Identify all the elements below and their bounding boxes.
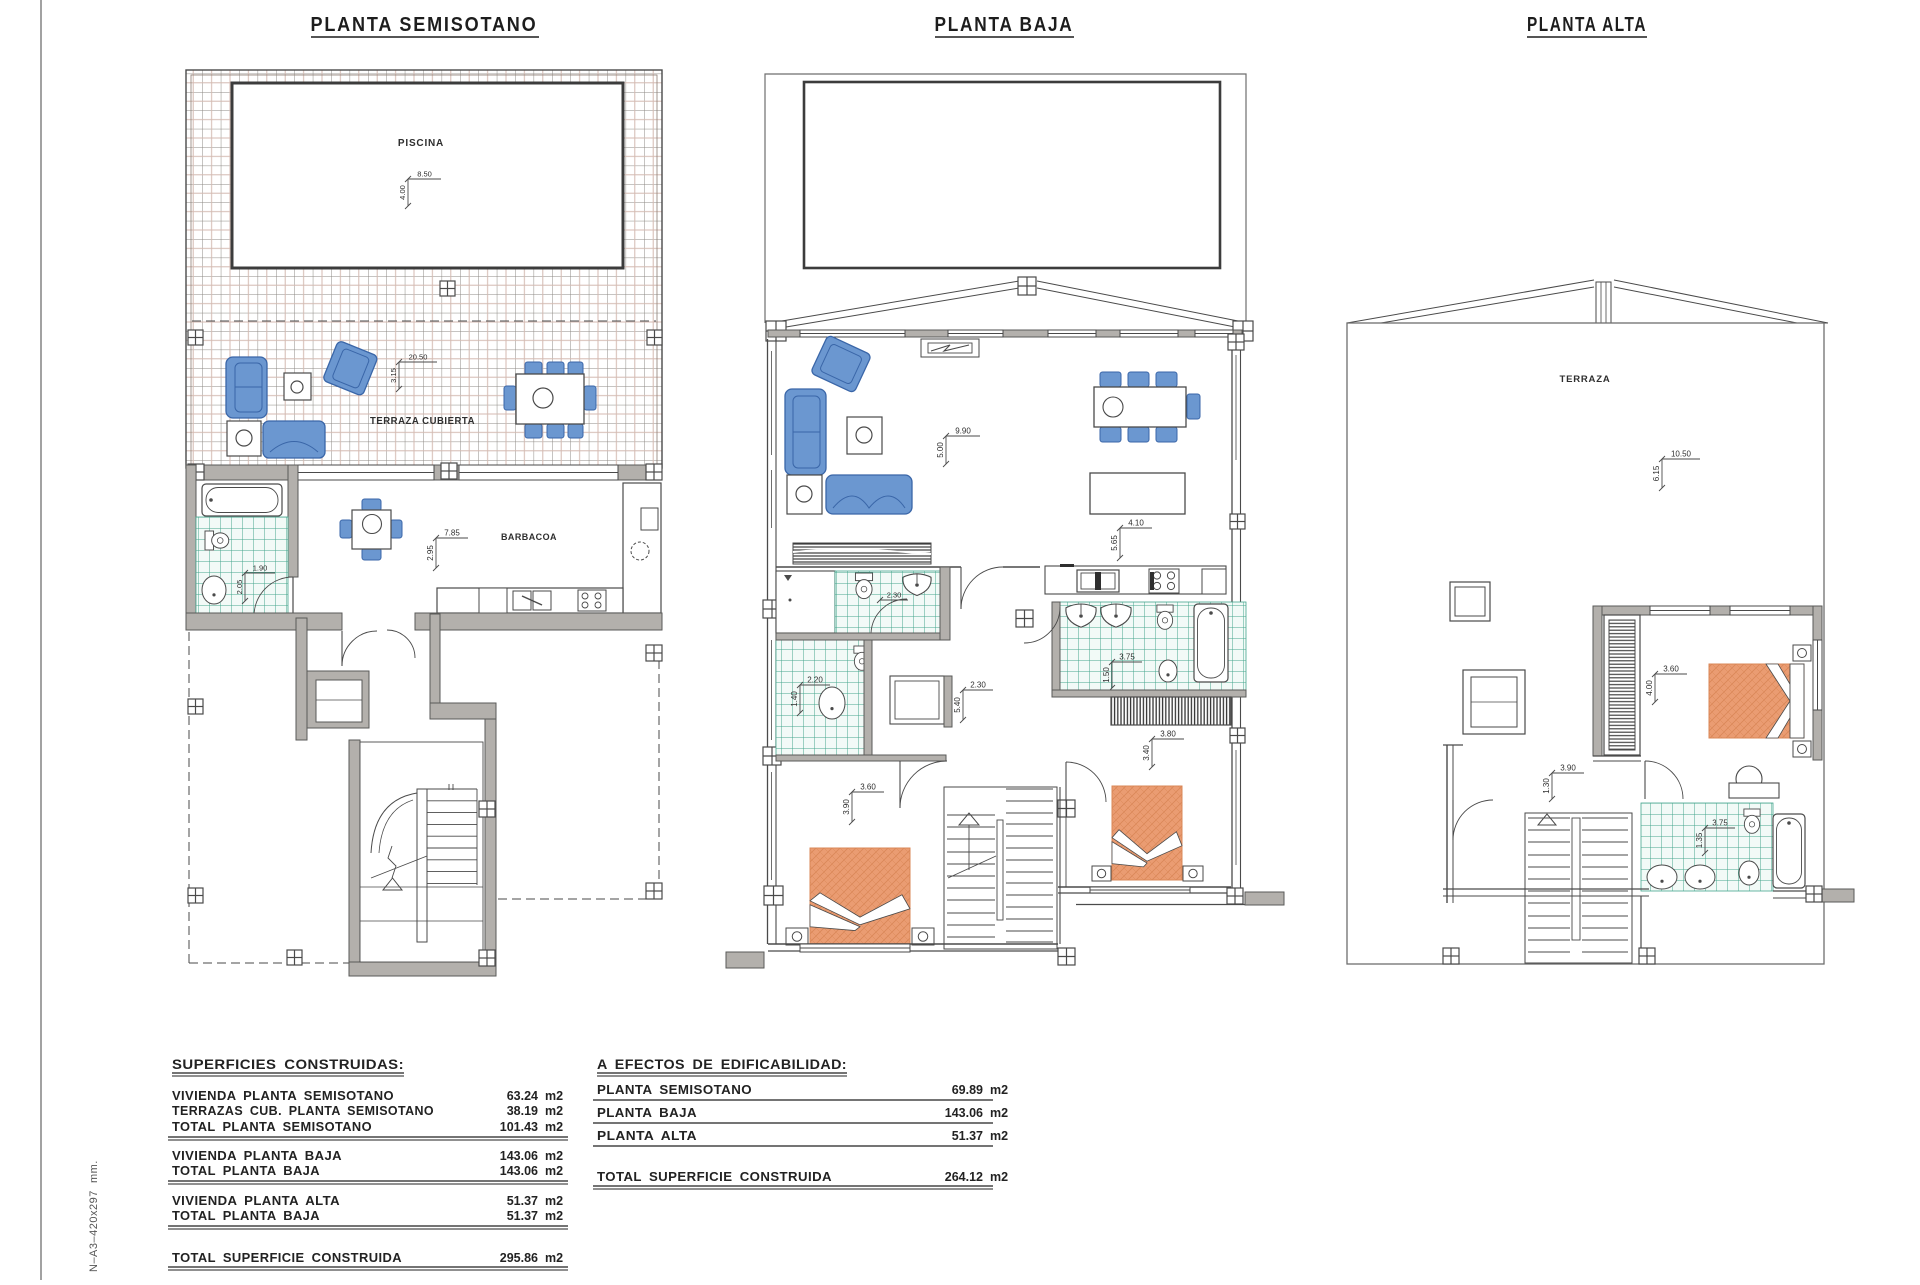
svg-text:m2: m2	[545, 1149, 563, 1163]
svg-text:4.00: 4.00	[1645, 680, 1654, 696]
svg-text:295.86: 295.86	[500, 1251, 538, 1265]
svg-text:TOTAL SUPERFICIE CONSTRUIDA: TOTAL SUPERFICIE CONSTRUIDA	[172, 1251, 402, 1265]
svg-text:5.00: 5.00	[936, 442, 945, 458]
svg-text:63.24: 63.24	[507, 1089, 538, 1103]
svg-text:6.15: 6.15	[1652, 465, 1661, 481]
svg-text:TERRAZAS CUB. PLANTA SEMISO: TERRAZAS CUB. PLANTA SEMISOTANO	[172, 1104, 434, 1118]
svg-text:1.50: 1.50	[1102, 667, 1111, 683]
svg-text:TOTAL PLANTA SEMISOTANO: TOTAL PLANTA SEMISOTANO	[172, 1120, 372, 1134]
svg-text:BARBACOA: BARBACOA	[501, 532, 557, 543]
svg-text:PLANTA BAJA: PLANTA BAJA	[597, 1106, 697, 1120]
svg-text:2.95: 2.95	[426, 545, 435, 561]
svg-text:143.06: 143.06	[945, 1106, 983, 1120]
svg-text:2.30: 2.30	[970, 681, 986, 690]
svg-text:143.06: 143.06	[500, 1149, 538, 1163]
svg-text:PLANTA ALTA: PLANTA ALTA	[597, 1129, 697, 1143]
svg-text:143.06: 143.06	[500, 1164, 538, 1178]
svg-text:m2: m2	[545, 1209, 563, 1223]
svg-text:m2: m2	[545, 1089, 563, 1103]
svg-text:m2: m2	[545, 1251, 563, 1265]
svg-text:TOTAL PLANTA BAJA: TOTAL PLANTA BAJA	[172, 1164, 320, 1178]
svg-text:20.50: 20.50	[409, 353, 428, 362]
svg-text:3.90: 3.90	[842, 799, 851, 815]
svg-text:2.05: 2.05	[235, 580, 244, 595]
svg-text:264.12: 264.12	[945, 1170, 983, 1184]
svg-text:3.15: 3.15	[389, 368, 398, 383]
svg-text:38.19: 38.19	[507, 1104, 538, 1118]
svg-text:TERRAZA: TERRAZA	[1560, 374, 1611, 385]
svg-text:m2: m2	[990, 1106, 1008, 1120]
svg-text:1.35: 1.35	[1695, 832, 1704, 848]
svg-text:N–A3–420x297 mm.: N–A3–420x297 mm.	[88, 1160, 100, 1272]
svg-text:3.60: 3.60	[860, 783, 876, 792]
svg-text:A EFECTOS DE EDIFICABILIDAD:: A EFECTOS DE EDIFICABILIDAD:	[597, 1057, 847, 1072]
svg-text:VIVIENDA PLANTA SEMISOTANO: VIVIENDA PLANTA SEMISOTANO	[172, 1089, 394, 1103]
svg-text:SUPERFICIES CONSTRUIDAS:: SUPERFICIES CONSTRUIDAS:	[172, 1057, 404, 1072]
svg-text:VIVIENDA PLANTA BAJA: VIVIENDA PLANTA BAJA	[172, 1149, 342, 1163]
svg-text:1.90: 1.90	[253, 564, 268, 573]
svg-text:10.50: 10.50	[1671, 450, 1692, 459]
svg-text:1.40: 1.40	[790, 691, 799, 707]
svg-text:4.00: 4.00	[398, 185, 407, 200]
svg-text:m2: m2	[545, 1120, 563, 1134]
svg-text:TOTAL SUPERFICIE CONSTRUIDA: TOTAL SUPERFICIE CONSTRUIDA	[597, 1170, 832, 1184]
svg-text:PISCINA: PISCINA	[398, 138, 444, 149]
svg-text:m2: m2	[990, 1129, 1008, 1143]
svg-text:TERRAZA CUBIERTA: TERRAZA CUBIERTA	[370, 415, 475, 427]
svg-text:PLANTA ALTA: PLANTA ALTA	[1527, 14, 1647, 36]
svg-text:TOTAL PLANTA BAJA: TOTAL PLANTA BAJA	[172, 1209, 320, 1223]
svg-text:3.75: 3.75	[1712, 819, 1728, 828]
svg-text:3.60: 3.60	[1663, 665, 1679, 674]
svg-text:1.30: 1.30	[1542, 778, 1551, 794]
svg-text:2.30: 2.30	[887, 591, 902, 600]
svg-text:3.90: 3.90	[1560, 764, 1576, 773]
svg-text:51.37: 51.37	[507, 1209, 538, 1223]
svg-text:m2: m2	[545, 1164, 563, 1178]
svg-text:8.50: 8.50	[417, 170, 432, 179]
svg-text:m2: m2	[990, 1083, 1008, 1097]
svg-text:5.40: 5.40	[953, 697, 962, 713]
svg-text:3.40: 3.40	[1142, 745, 1151, 761]
svg-text:9.90: 9.90	[955, 427, 971, 436]
svg-text:PLANTA SEMISOTANO: PLANTA SEMISOTANO	[597, 1083, 752, 1097]
svg-text:51.37: 51.37	[507, 1194, 538, 1208]
svg-text:69.89: 69.89	[952, 1083, 983, 1097]
svg-text:m2: m2	[990, 1170, 1008, 1184]
svg-text:5.65: 5.65	[1110, 535, 1119, 551]
svg-text:VIVIENDA PLANTA ALTA: VIVIENDA PLANTA ALTA	[172, 1194, 340, 1208]
svg-text:2.20: 2.20	[807, 676, 823, 685]
svg-text:PLANTA SEMISOTANO: PLANTA SEMISOTANO	[311, 14, 538, 36]
svg-text:51.37: 51.37	[952, 1129, 983, 1143]
svg-text:4.10: 4.10	[1128, 519, 1144, 528]
svg-text:PLANTA BAJA: PLANTA BAJA	[935, 14, 1074, 36]
svg-text:3.80: 3.80	[1160, 730, 1176, 739]
svg-text:m2: m2	[545, 1194, 563, 1208]
svg-text:m2: m2	[545, 1104, 563, 1118]
svg-text:3.75: 3.75	[1119, 653, 1135, 662]
svg-text:7.85: 7.85	[444, 529, 460, 538]
svg-text:101.43: 101.43	[500, 1120, 538, 1134]
